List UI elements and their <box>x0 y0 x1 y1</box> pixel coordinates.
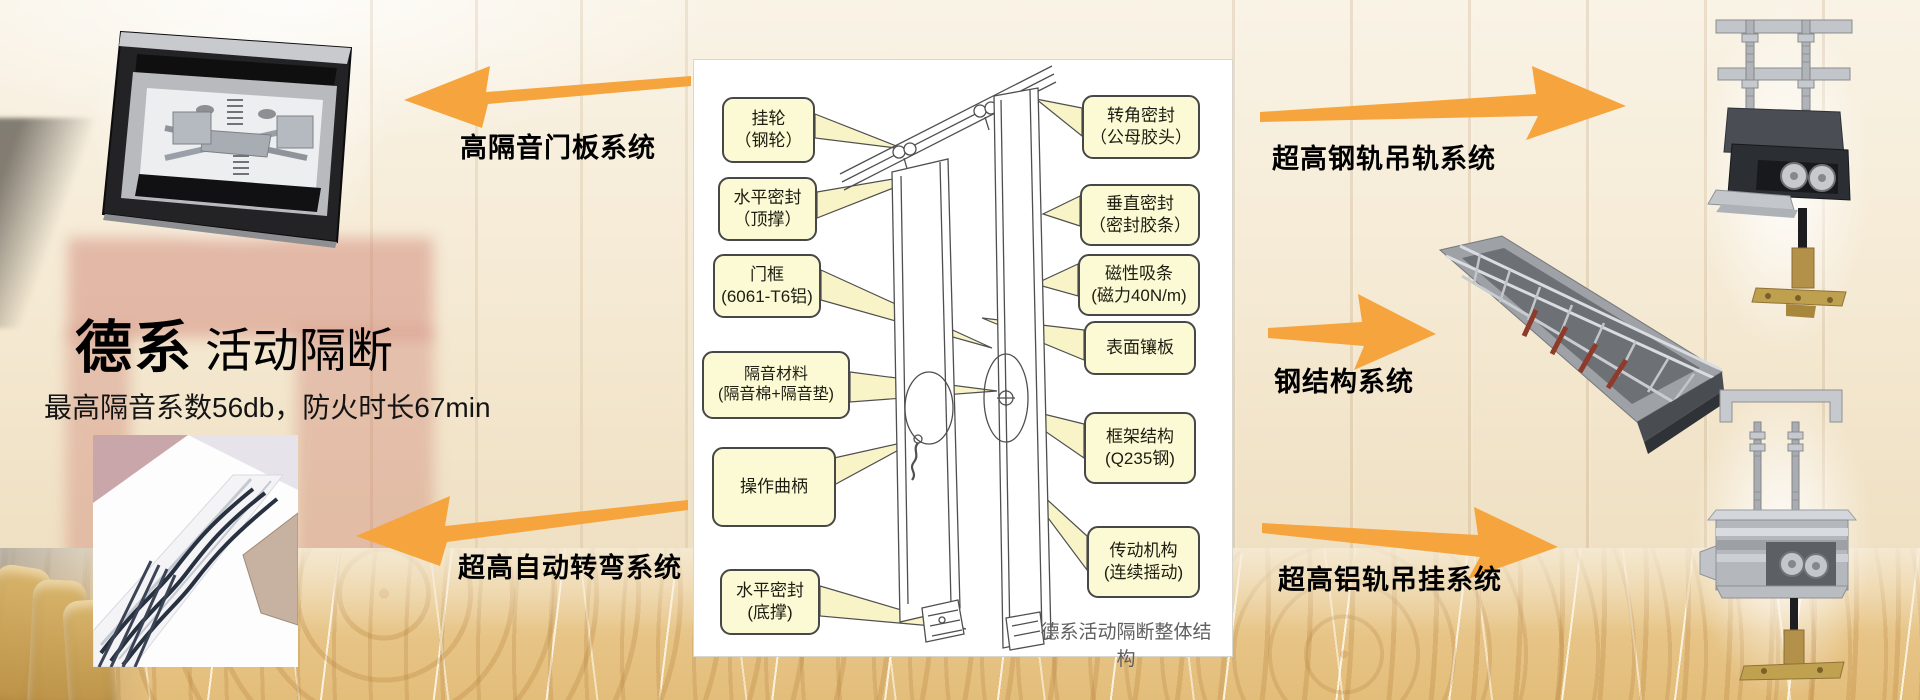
callout-operating-crank: 操作曲柄 <box>712 447 836 527</box>
callout-magnetic-strip: 磁性吸条 (磁力40N/m) <box>1078 254 1200 316</box>
diagram-caption: 德系活动隔断整体结构 <box>1032 617 1220 671</box>
photo-curved-track <box>93 435 298 667</box>
photo-steel-structure-frame <box>1432 232 1727 467</box>
door-panel-illustration <box>85 6 390 254</box>
right-arrow-icon <box>1260 64 1630 142</box>
callout-surface-panel: 表面镶板 <box>1084 321 1196 375</box>
callout-corner-seal: 转角密封 （公母胶头） <box>1082 95 1200 159</box>
callout-vertical-seal: 垂直密封 （密封胶条） <box>1080 184 1200 246</box>
callout-sound-insulation: 隔音材料 (隔音棉+隔音垫) <box>702 351 850 419</box>
title-product: 活动隔断 <box>205 324 393 377</box>
callout-transmission-mechanism: 传动机构 (连续摇动) <box>1087 526 1200 598</box>
slide-canvas: 德系活动隔断 最高隔音系数56db，防火时长67min 高隔音门板系统 超高自动… <box>0 0 1920 700</box>
photo-door-panel-mechanism <box>85 6 390 254</box>
callout-door-frame: 门框 (6061-T6铝) <box>713 254 821 318</box>
callout-horizontal-seal-bottom: 水平密封 (底撑) <box>720 569 820 635</box>
callout-frame-structure: 框架结构 (Q235钢) <box>1084 412 1196 484</box>
steel-frame-illustration <box>1432 232 1727 467</box>
label-steel-structure-system: 钢结构系统 <box>1274 360 1414 399</box>
callout-horizontal-seal-top: 水平密封 （顶撑） <box>718 177 817 241</box>
aluminum-hanger-illustration <box>1692 382 1872 700</box>
label-steel-rail-system: 超高钢轨吊轨系统 <box>1272 137 1496 176</box>
title-brand: 德系 <box>75 316 193 380</box>
label-auto-turn-system: 超高自动转弯系统 <box>458 546 682 585</box>
subtitle-specs: 最高隔音系数56db，防火时长67min <box>44 386 491 426</box>
page-title: 德系活动隔断 <box>75 302 393 384</box>
label-door-panel-system: 高隔音门板系统 <box>460 126 656 165</box>
curved-track-illustration <box>93 435 298 667</box>
technical-diagram: 挂轮 （钢轮） 水平密封 （顶撑） 门框 (6061-T6铝) 隔音材料 (隔音… <box>693 59 1233 657</box>
label-aluminum-rail-system: 超高铝轨吊挂系统 <box>1278 558 1502 597</box>
callout-hanging-wheel: 挂轮 （钢轮） <box>722 97 815 163</box>
photo-aluminum-rail-hanger <box>1692 382 1872 700</box>
left-arrow-icon <box>398 60 693 128</box>
